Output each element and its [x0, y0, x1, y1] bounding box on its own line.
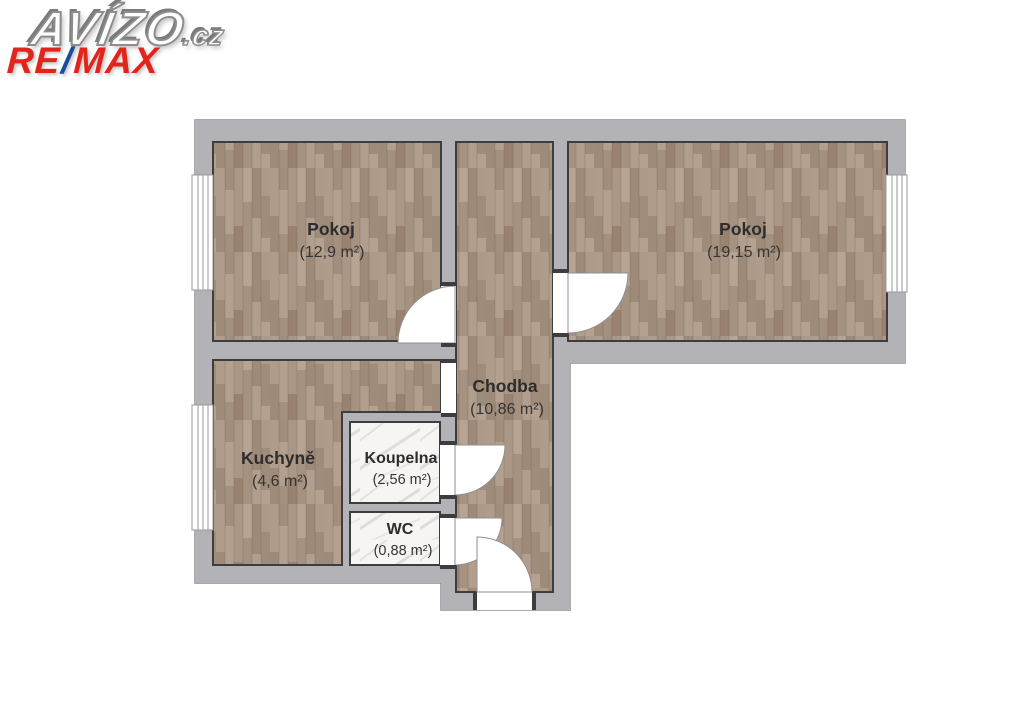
door-opening-entrance: [477, 592, 532, 610]
remax-re: RE: [6, 40, 62, 81]
floorplan-page: AVÍZO.cz RE/MAX: [0, 0, 1024, 724]
room-name-koupelna: Koupelna: [365, 450, 438, 467]
wall-segment: [553, 341, 905, 363]
remax-logo: RE/MAX: [6, 40, 160, 82]
floorplan-drawing: Pokoj (12,9 m²) Pokoj (19,15 m²) Chodba …: [0, 0, 1024, 724]
avizo-cz-suffix: .cz: [181, 20, 227, 51]
window-kuchyne: [192, 405, 213, 530]
room-name-kuchyne: Kuchyně: [241, 448, 315, 468]
room-name-pokoj-right: Pokoj: [719, 219, 767, 239]
room-floor-pokoj-left: [213, 142, 441, 341]
passage-kuchyne: [441, 363, 456, 413]
wall-segment: [195, 341, 455, 360]
room-name-chodba: Chodba: [472, 376, 537, 396]
room-area-wc: (0,88 m²): [374, 543, 433, 559]
door-opening-koupelna: [440, 445, 456, 495]
room-area-pokoj-right: (19,15 m²): [707, 244, 781, 261]
room-area-koupelna: (2,56 m²): [373, 472, 432, 488]
door-opening-pokoj-right: [553, 273, 568, 333]
room-floor-pokoj-right: [568, 142, 887, 341]
window-pokoj-right: [886, 175, 907, 292]
room-area-kuchyne: (4,6 m²): [252, 473, 308, 490]
remax-max: MAX: [73, 40, 160, 81]
door-opening-wc: [440, 518, 456, 565]
wall-segment: [195, 120, 905, 142]
room-area-pokoj-left: (12,9 m²): [300, 244, 365, 261]
room-name-wc: WC: [387, 521, 414, 538]
floors: [213, 142, 887, 592]
room-area-chodba: (10,86 m²): [470, 401, 544, 418]
window-pokoj-left: [192, 175, 213, 290]
room-name-pokoj-left: Pokoj: [307, 219, 355, 239]
